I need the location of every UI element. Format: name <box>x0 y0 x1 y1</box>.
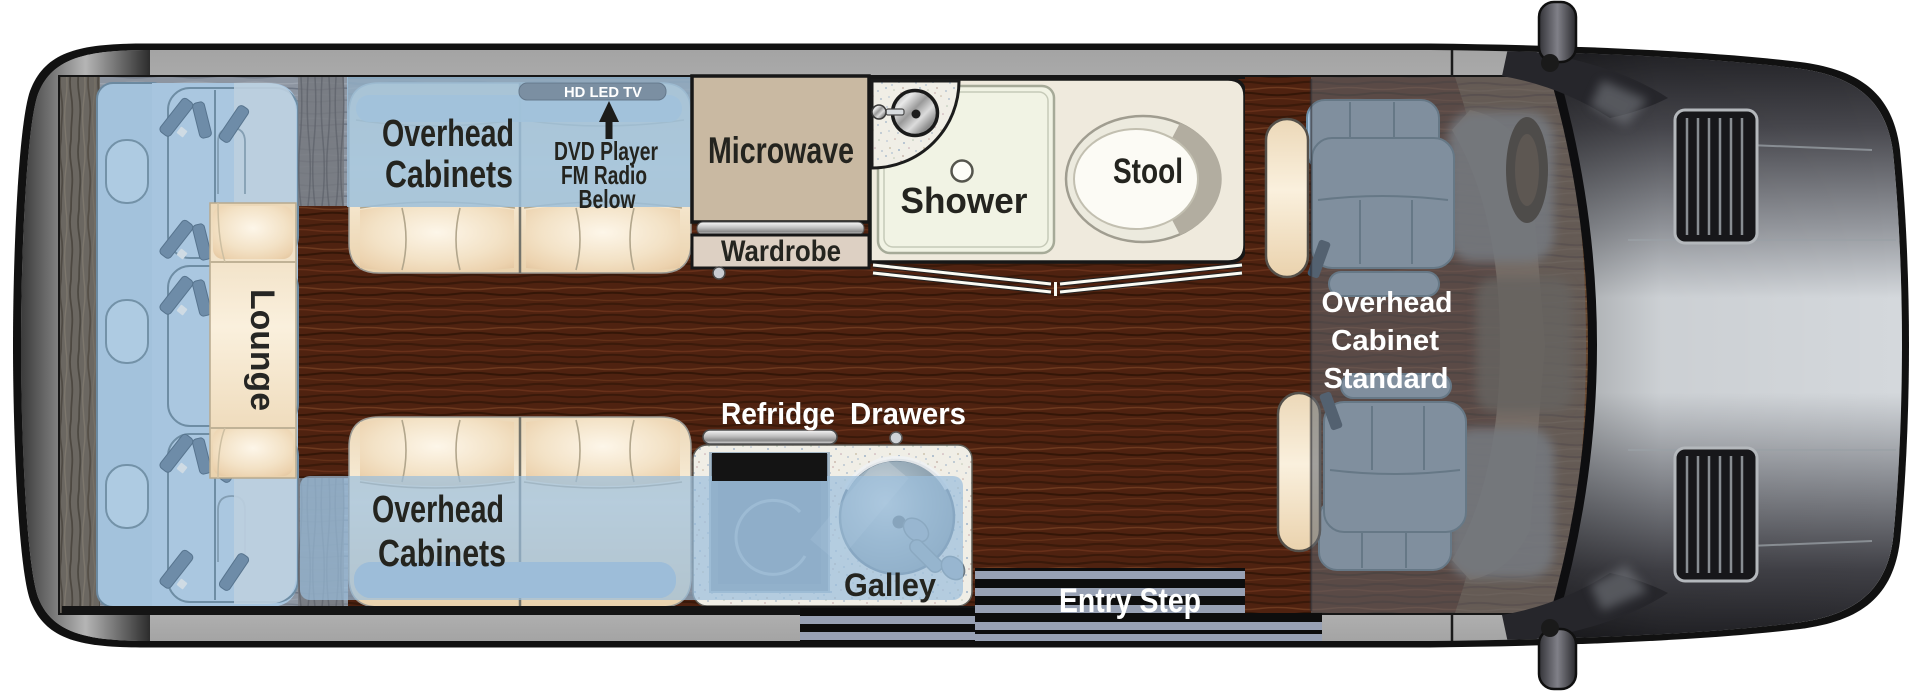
svg-text:Galley: Galley <box>844 567 936 603</box>
svg-text:Drawers: Drawers <box>850 396 966 431</box>
svg-text:Standard: Standard <box>1324 363 1449 395</box>
svg-text:Below: Below <box>579 184 637 214</box>
svg-text:Refridge: Refridge <box>721 396 835 431</box>
svg-text:HD LED TV: HD LED TV <box>564 84 642 101</box>
svg-text:Shower: Shower <box>901 180 1028 221</box>
svg-text:Microwave: Microwave <box>708 130 854 171</box>
svg-text:Entry Step: Entry Step <box>1059 582 1201 620</box>
svg-text:Wardrobe: Wardrobe <box>721 235 841 268</box>
svg-text:Cabinets: Cabinets <box>378 533 506 575</box>
svg-text:Overhead: Overhead <box>382 113 514 155</box>
svg-text:Overhead: Overhead <box>1322 287 1453 319</box>
svg-text:Cabinets: Cabinets <box>385 154 513 196</box>
svg-text:Overhead: Overhead <box>372 489 504 531</box>
svg-text:Stool: Stool <box>1113 152 1183 191</box>
svg-text:.: . <box>960 672 963 683</box>
svg-text:Lounge: Lounge <box>243 289 281 411</box>
svg-text:Cabinet: Cabinet <box>1331 325 1439 357</box>
